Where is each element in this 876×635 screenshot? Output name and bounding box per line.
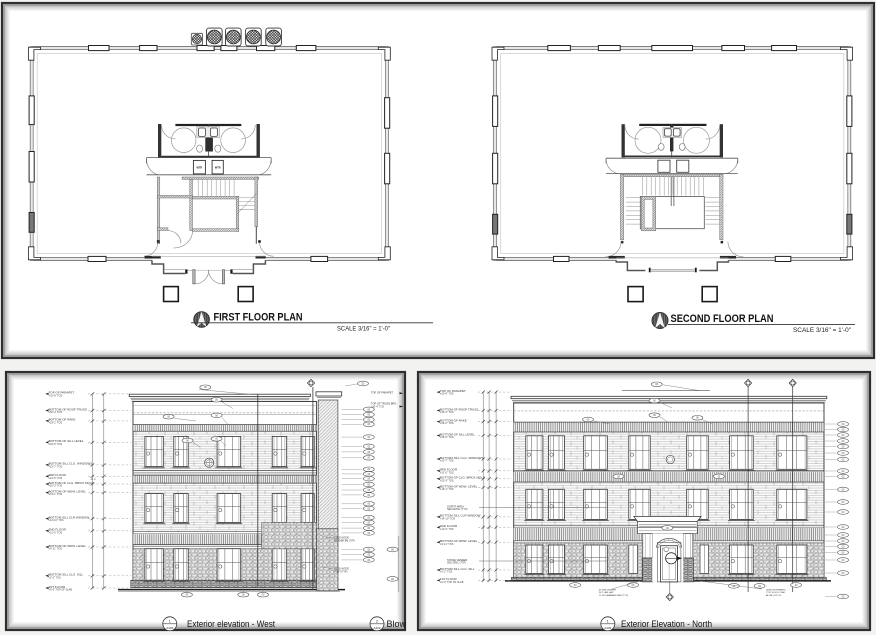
svg-text:FIRST FLOOR PLAN: FIRST FLOOR PLAN bbox=[214, 311, 303, 323]
svg-text:A403: A403 bbox=[604, 626, 611, 630]
svg-text:+21'-0" TOS: +21'-0" TOS bbox=[49, 477, 63, 480]
svg-text:+20'-3" TOS: +20'-3" TOS bbox=[440, 479, 454, 482]
svg-text:+9'-11" TOS: +9'-11" TOS bbox=[49, 548, 63, 551]
svg-text:WTR: WTR bbox=[215, 167, 221, 170]
svg-text:+32'-8" TOS: +32'-8" TOS bbox=[440, 393, 454, 396]
svg-text:Exterior elevation - West: Exterior elevation - West bbox=[187, 619, 275, 629]
svg-text:+3'-2" TOS: +3'-2" TOS bbox=[440, 571, 453, 574]
svg-text:SCALE 3/16" = 1'-0": SCALE 3/16" = 1'-0" bbox=[793, 328, 851, 334]
svg-text:TOP OF PARAPET: TOP OF PARAPET bbox=[371, 390, 394, 394]
svg-text:POST (TYP): POST (TYP) bbox=[335, 571, 348, 573]
svg-text:+30'-4" TOS: +30'-4" TOS bbox=[371, 405, 384, 408]
svg-text:+29'-2" TOS: +29'-2" TOS bbox=[49, 422, 63, 425]
svg-text:STONE VENEER: STONE VENEER bbox=[599, 590, 617, 592]
svg-text:SCALE 3/16" = 1'-0": SCALE 3/16" = 1'-0" bbox=[337, 326, 390, 332]
svg-text:+12'-0" TOS: +12'-0" TOS bbox=[440, 528, 454, 531]
svg-text:DECK WOOD: DECK WOOD bbox=[335, 538, 350, 540]
svg-text:DECK WOOD: DECK WOOD bbox=[335, 569, 350, 571]
svg-text:+9'-11" TOS: +9'-11" TOS bbox=[440, 543, 454, 546]
svg-text:+32'-8" TOS: +32'-8" TOS bbox=[49, 395, 63, 398]
svg-text:+30'-4" TOS: +30'-4" TOS bbox=[49, 411, 63, 414]
svg-text:+23'-7" TOS: +23'-7" TOS bbox=[440, 460, 454, 463]
svg-text:+21'-0" TOS: +21'-0" TOS bbox=[440, 471, 454, 474]
svg-text:+29'-2" TOS: +29'-2" TOS bbox=[440, 422, 454, 425]
svg-text:+26'-5" TOS: +26'-5" TOS bbox=[49, 443, 63, 446]
svg-text:+0'-0" TOP OF SLAB: +0'-0" TOP OF SLAB bbox=[49, 589, 73, 592]
svg-text:ALUM (TYP) CL: ALUM (TYP) CL bbox=[766, 594, 783, 597]
svg-text:+20'-3" TOS: +20'-3" TOS bbox=[49, 485, 63, 488]
svg-text:1: 1 bbox=[169, 619, 171, 623]
svg-text:+14'-10" TOS: +14'-10" TOS bbox=[49, 519, 64, 522]
svg-text:+19'-1" TOS: +19'-1" TOS bbox=[440, 488, 454, 491]
svg-text:+14'-10" TOS: +14'-10" TOS bbox=[440, 518, 455, 521]
svg-text:+0'-0" TOP OF SLAB: +0'-0" TOP OF SLAB bbox=[440, 581, 464, 584]
svg-text:SECOND FLOOR PLAN: SECOND FLOOR PLAN bbox=[671, 313, 774, 325]
svg-text:HEADER BM (TYP): HEADER BM (TYP) bbox=[335, 539, 356, 542]
svg-text:40'-8": 40'-8" bbox=[91, 479, 97, 481]
svg-text:WTR: WTR bbox=[197, 167, 203, 170]
svg-text:A402: A402 bbox=[373, 626, 380, 630]
svg-text:+30'-4" TOS: +30'-4" TOS bbox=[440, 411, 454, 414]
svg-text:+3'-2" TOS: +3'-2" TOS bbox=[49, 576, 62, 579]
svg-text:+12'-0" TOS: +12'-0" TOS bbox=[49, 531, 63, 534]
svg-text:1: 1 bbox=[607, 619, 609, 623]
svg-text:+23'-7" TOS: +23'-7" TOS bbox=[49, 466, 63, 469]
svg-text:SEE DETAIL (TYP): SEE DETAIL (TYP) bbox=[447, 508, 468, 511]
svg-text:Exterior Elevation - North: Exterior Elevation - North bbox=[621, 619, 712, 629]
svg-text:SEE SPEC (TYP): SEE SPEC (TYP) bbox=[447, 562, 466, 565]
svg-text:W/ 1" AIR GAP: W/ 1" AIR GAP bbox=[599, 591, 614, 594]
svg-text:+26'-5" TOS: +26'-5" TOS bbox=[440, 436, 454, 439]
svg-text:Blow: Blow bbox=[387, 619, 407, 629]
svg-text:CL W/ DRAINAGE MAT (TYP): CL W/ DRAINAGE MAT (TYP) bbox=[599, 594, 629, 597]
svg-text:PTD. WOOD CLAD: PTD. WOOD CLAD bbox=[766, 591, 786, 594]
svg-text:A402: A402 bbox=[166, 626, 173, 630]
svg-text:+19'-1" TOS: +19'-1" TOS bbox=[49, 493, 63, 496]
svg-text:WINDOW FRAMES: WINDOW FRAMES bbox=[766, 589, 786, 592]
svg-text:2: 2 bbox=[376, 619, 378, 623]
